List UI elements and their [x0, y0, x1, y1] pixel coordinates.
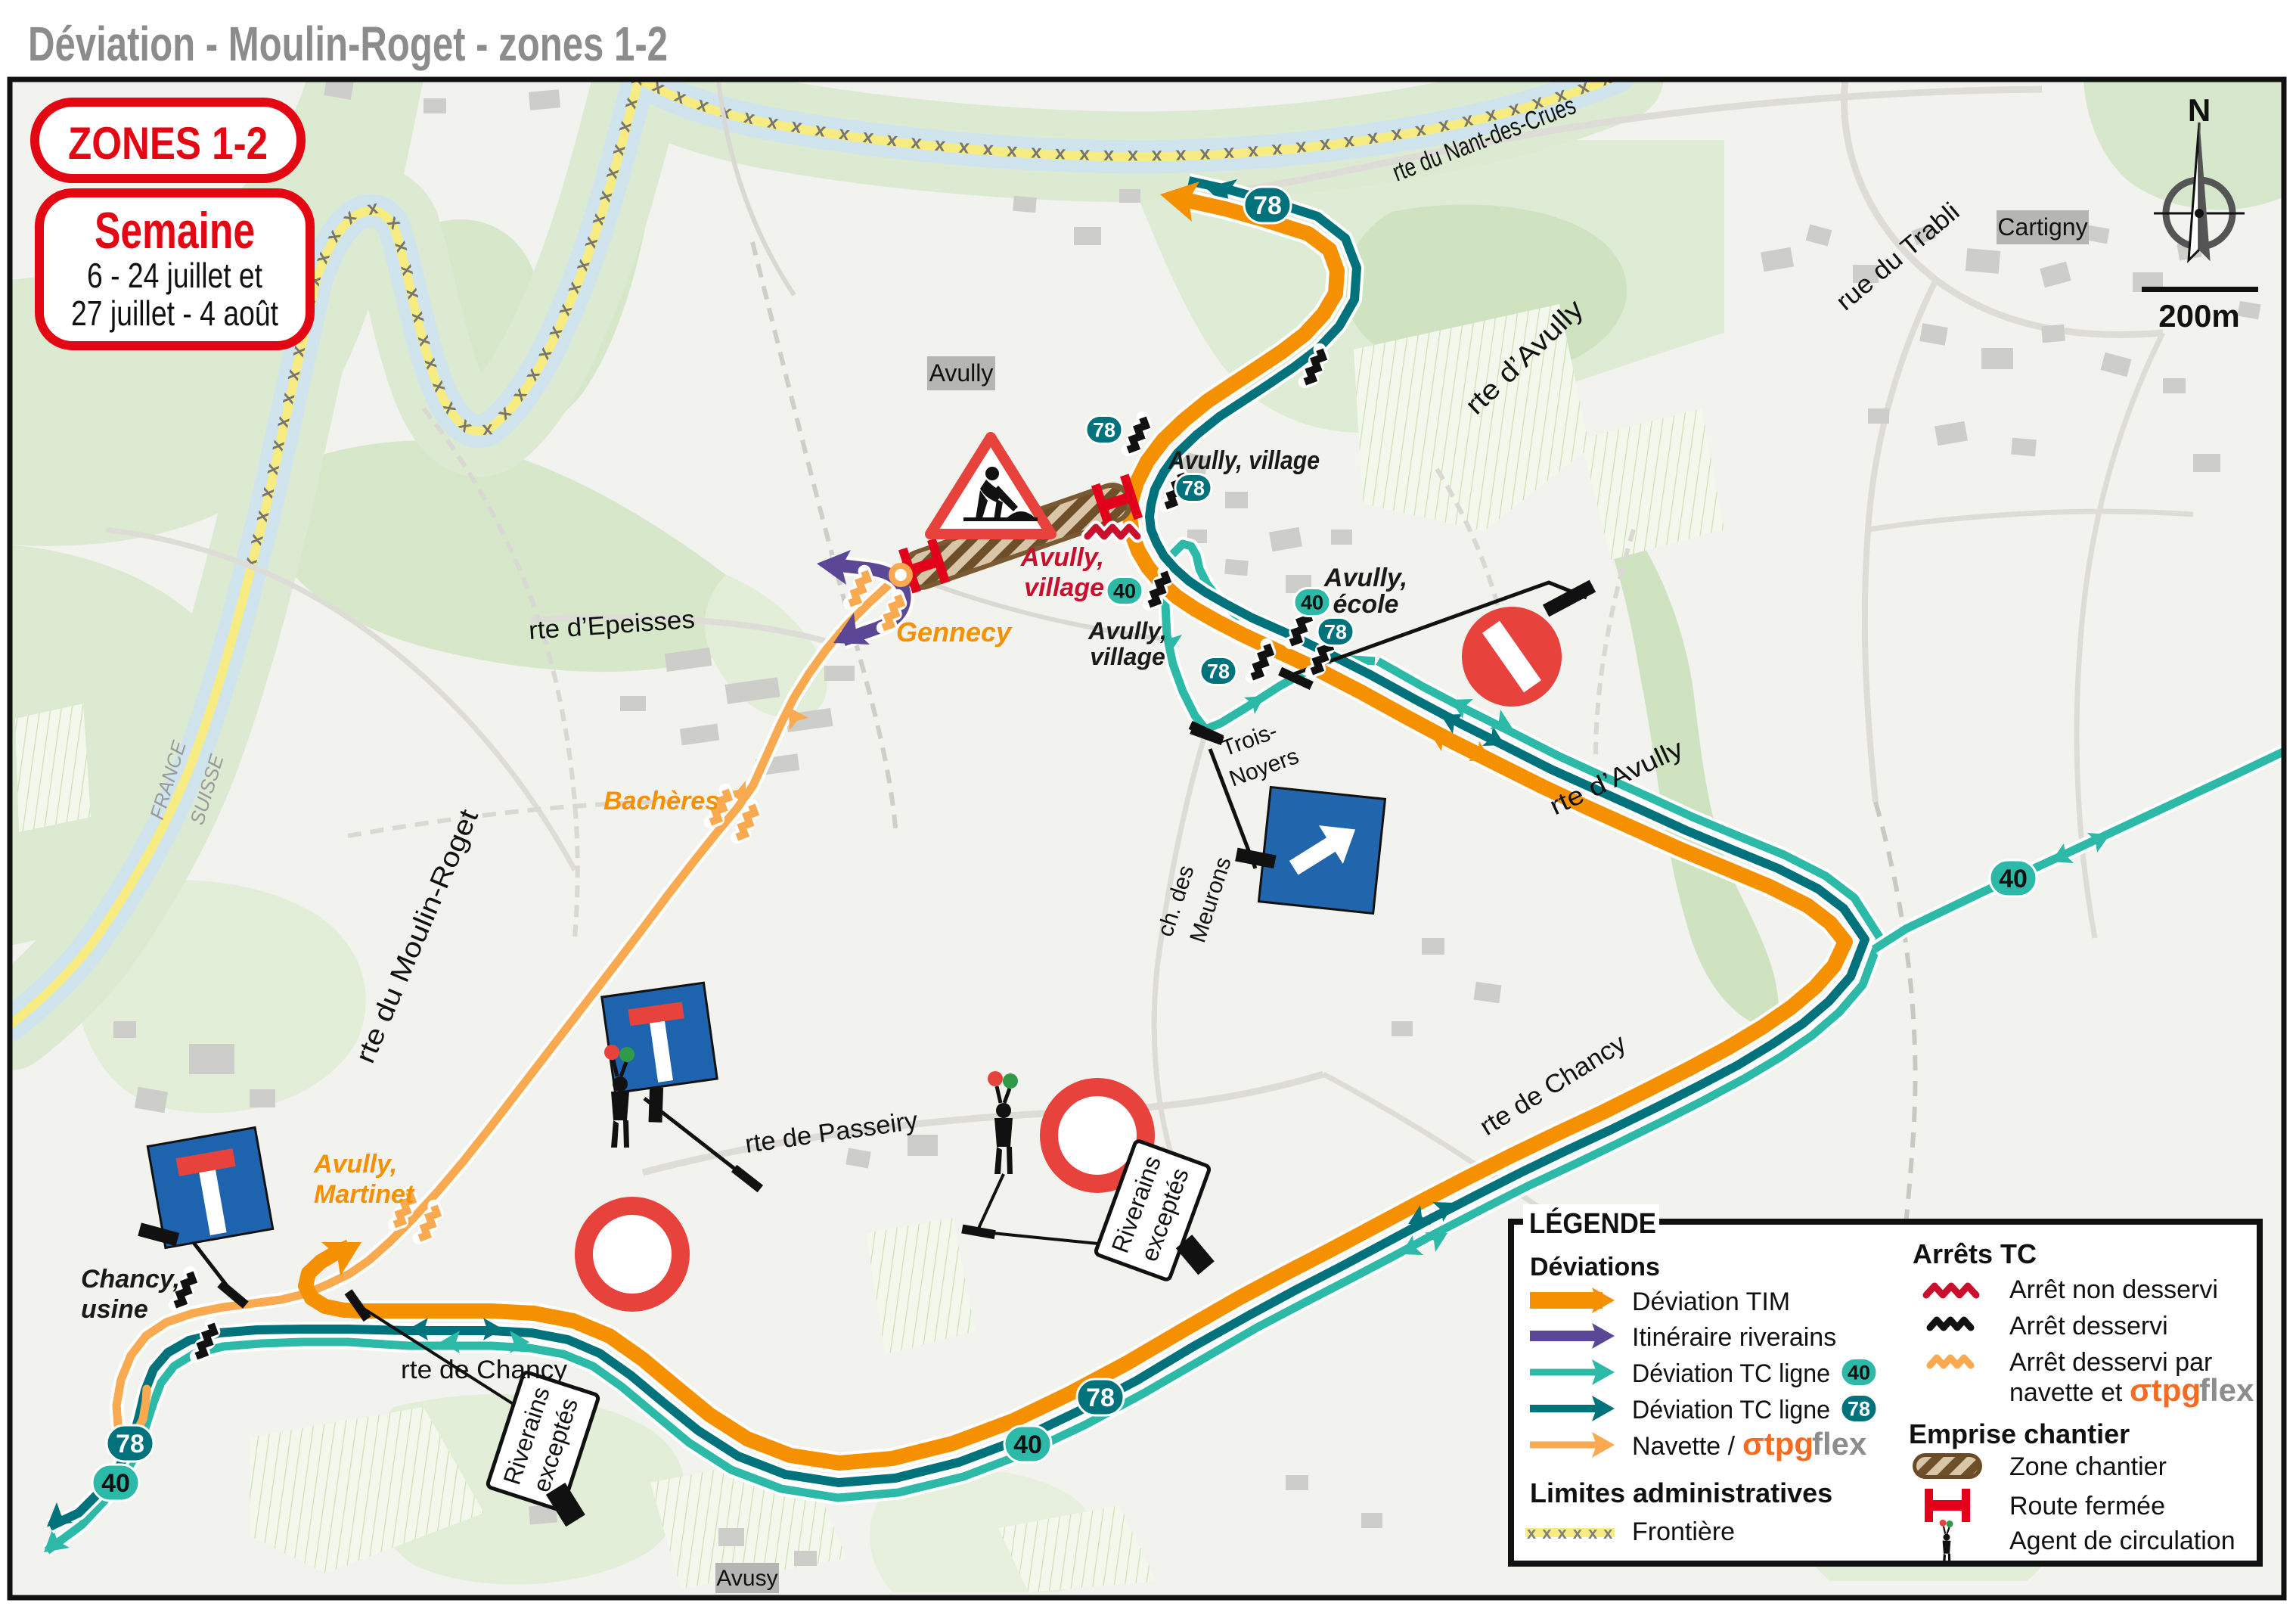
svg-text:Bachères: Bachères [603, 787, 719, 815]
svg-text:village: village [1024, 573, 1104, 602]
svg-text:Emprise chantier: Emprise chantier [1909, 1418, 2130, 1449]
svg-text:Avully: Avully [929, 359, 994, 387]
svg-text:flex: flex [2199, 1372, 2254, 1408]
svg-text:σtpg: σtpg [1742, 1426, 1814, 1461]
svg-text:ZONES 1-2: ZONES 1-2 [68, 118, 268, 169]
svg-text:Martinet: Martinet [314, 1180, 415, 1209]
svg-text:navette et: navette et [2009, 1378, 2123, 1407]
svg-text:Navette /: Navette / [1632, 1432, 1736, 1461]
svg-text:Avully,: Avully, [1323, 564, 1407, 592]
svg-text:Chancy,: Chancy, [81, 1265, 180, 1294]
svg-text:Avully,: Avully, [1087, 617, 1167, 645]
svg-text:Zone chantier: Zone chantier [2009, 1452, 2167, 1481]
svg-text:78: 78 [1253, 191, 1282, 220]
svg-text:Semaine: Semaine [95, 202, 255, 259]
svg-text:Déviation TIM: Déviation TIM [1632, 1288, 1790, 1316]
svg-text:78: 78 [1324, 620, 1347, 643]
svg-text:Avully,: Avully, [313, 1150, 397, 1179]
svg-text:40: 40 [1013, 1430, 1042, 1459]
svg-text:Limites administratives: Limites administratives [1530, 1477, 1832, 1508]
svg-text:xxxxxx: xxxxxx [1527, 1524, 1618, 1542]
svg-text:Itinéraire riverains: Itinéraire riverains [1632, 1323, 1836, 1352]
svg-text:78: 78 [1848, 1397, 1870, 1420]
svg-text:40: 40 [1848, 1361, 1870, 1384]
svg-text:78: 78 [1207, 660, 1230, 682]
svg-text:flex: flex [1812, 1426, 1867, 1461]
svg-text:Agent de circulation: Agent de circulation [2009, 1527, 2235, 1555]
svg-text:78: 78 [1182, 477, 1205, 499]
svg-text:27 juillet - 4 août: 27 juillet - 4 août [71, 294, 278, 333]
svg-text:6 - 24 juillet et: 6 - 24 juillet et [87, 256, 262, 295]
svg-text:Arrêt desservi: Arrêt desservi [2009, 1312, 2168, 1340]
svg-text:village: village [1090, 643, 1165, 670]
svg-text:40: 40 [1999, 865, 2028, 893]
svg-text:Avusy: Avusy [716, 1566, 777, 1591]
svg-text:Avully,: Avully, [1020, 543, 1104, 572]
svg-text:40: 40 [1113, 579, 1136, 602]
svg-text:40: 40 [101, 1469, 130, 1498]
svg-text:Déviation TC ligne: Déviation TC ligne [1632, 1359, 1830, 1388]
svg-text:200m: 200m [2158, 298, 2239, 334]
svg-text:LÉGENDE: LÉGENDE [1529, 1207, 1656, 1240]
svg-text:Cartigny: Cartigny [1997, 213, 2087, 241]
svg-text:rte de Chancy: rte de Chancy [401, 1356, 567, 1384]
svg-text:école: école [1333, 590, 1399, 619]
svg-text:40: 40 [1301, 591, 1323, 613]
svg-text:Déviation TC ligne: Déviation TC ligne [1632, 1396, 1830, 1424]
svg-text:Route fermée: Route fermée [2009, 1492, 2165, 1520]
svg-text:Déviations: Déviations [1530, 1253, 1660, 1281]
svg-text:Frontière: Frontière [1632, 1517, 1735, 1546]
svg-text:78: 78 [1086, 1384, 1115, 1412]
svg-text:Gennecy: Gennecy [896, 617, 1013, 648]
svg-text:Avully, village: Avully, village [1168, 446, 1320, 475]
svg-text:Arrêt non desservi: Arrêt non desservi [2009, 1275, 2218, 1304]
svg-text:Arrêts TC: Arrêts TC [1913, 1238, 2037, 1269]
svg-text:σtpg: σtpg [2130, 1372, 2201, 1408]
svg-text:Déviation - Moulin-Roget - zon: Déviation - Moulin-Roget - zones 1-2 [28, 17, 668, 71]
svg-text:78: 78 [1093, 418, 1115, 441]
svg-text:usine: usine [81, 1295, 148, 1324]
svg-text:78: 78 [116, 1430, 144, 1458]
